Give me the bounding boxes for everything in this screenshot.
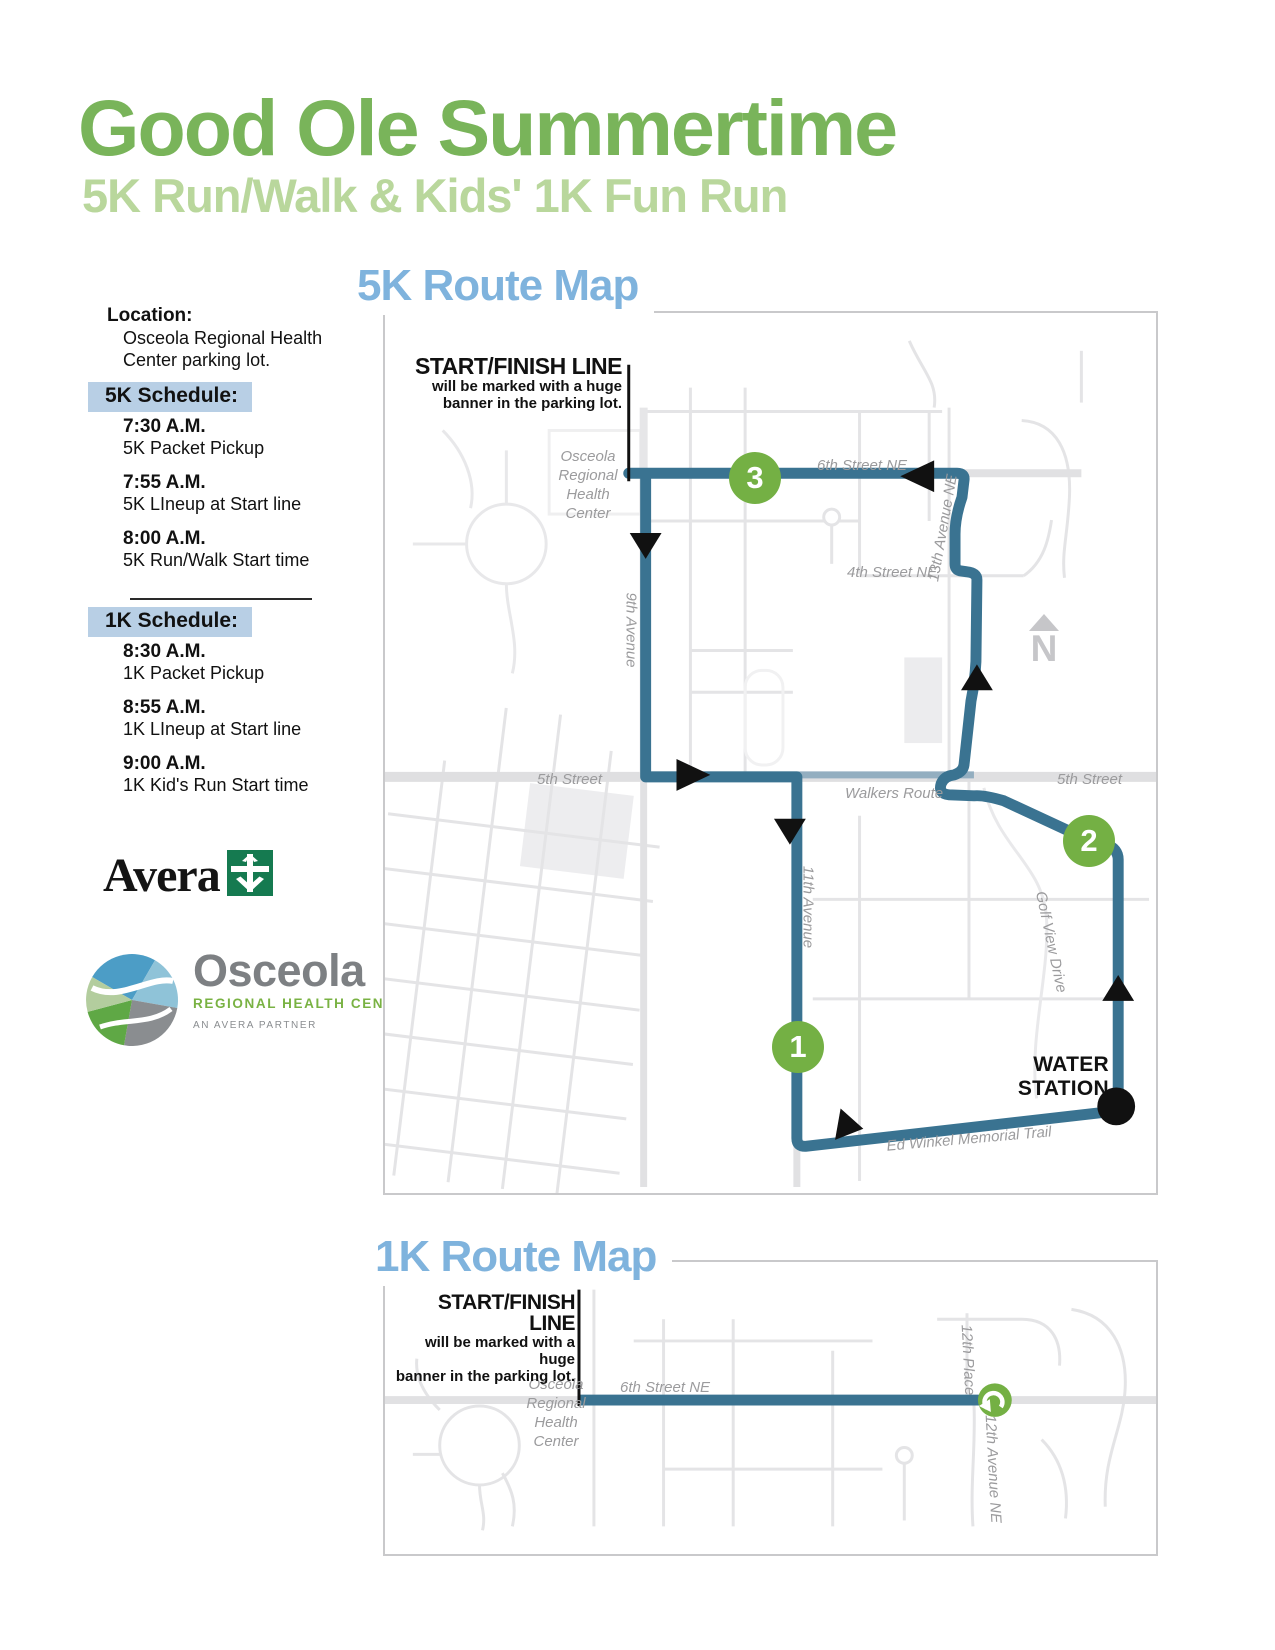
schedule-time: 7:30 A.M.: [123, 416, 309, 438]
arrow-north-east-leg: [1102, 975, 1134, 1001]
street-label-6th-1k: 6th Street NE: [620, 1379, 710, 1396]
schedule-1k-item: 8:30 A.M. 1K Packet Pickup: [123, 641, 309, 684]
walkers-route-label: Walkers Route: [845, 785, 943, 802]
hospital-label-line: Regional: [535, 466, 641, 485]
schedule-5k-item: 7:30 A.M. 5K Packet Pickup: [123, 416, 309, 459]
hospital-label-line: Center: [506, 1432, 606, 1451]
map-5k-heading: 5K Route Map: [357, 263, 654, 315]
map-1k: START/FINISH LINE will be marked with a …: [383, 1260, 1158, 1556]
start-finish-sub2: banner in the parking lot.: [385, 395, 622, 412]
start-finish-sub2: banner in the parking lot.: [387, 1368, 575, 1385]
tilted-street-grid: [385, 695, 674, 1193]
schedule-1k-item: 9:00 A.M. 1K Kid's Run Start time: [123, 753, 309, 796]
map-1k-heading: 1K Route Map: [375, 1234, 672, 1286]
osceola-logo: Osceola REGIONAL HEALTH CENTER AN AVERA …: [80, 948, 416, 1057]
location-line-2: Center parking lot.: [123, 349, 322, 371]
route-marker-2: 2: [1063, 815, 1115, 867]
avera-wordmark: Avera: [103, 852, 220, 900]
water-station-line: STATION: [889, 1077, 1109, 1101]
street-label-9th-ave: 9th Avenue: [623, 592, 640, 667]
schedule-desc: 5K Run/Walk Start time: [123, 550, 309, 571]
schedule-desc: 1K LIneup at Start line: [123, 719, 309, 740]
street-label-6th: 6th Street NE: [817, 457, 907, 474]
schedule-5k-item: 8:00 A.M. 5K Run/Walk Start time: [123, 528, 309, 571]
hospital-label-line: Health: [506, 1413, 606, 1432]
cul-de-sac: [824, 509, 840, 525]
compass-letter: N: [1031, 631, 1058, 667]
street-golf-view: [984, 788, 1047, 1099]
start-finish-sub1: will be marked with a huge: [385, 378, 622, 395]
schedule-1k-item: 8:55 A.M. 1K LIneup at Start line: [123, 697, 309, 740]
start-finish-sub1: will be marked with a huge: [387, 1334, 575, 1368]
schedule-1k-list: 8:30 A.M. 1K Packet Pickup 8:55 A.M. 1K …: [123, 641, 309, 809]
parking-lot-outline: [745, 670, 783, 765]
hospital-label-1k: Osceola Regional Health Center: [506, 1375, 606, 1451]
hospital-label-line: Osceola: [535, 447, 641, 466]
route-marker-3: 3: [729, 452, 781, 504]
hospital-label-line: Regional: [506, 1394, 606, 1413]
schedule-desc: 1K Kid's Run Start time: [123, 775, 309, 796]
schedule-desc: 5K LIneup at Start line: [123, 494, 309, 515]
hospital-label-line: Center: [535, 504, 641, 523]
schedule-5k-list: 7:30 A.M. 5K Packet Pickup 7:55 A.M. 5K …: [123, 416, 309, 584]
schedule-5k-item: 7:55 A.M. 5K LIneup at Start line: [123, 472, 309, 515]
schedule-time: 9:00 A.M.: [123, 753, 309, 775]
route-marker-1: 1: [772, 1021, 824, 1073]
start-finish-annotation-5k: START/FINISH LINE will be marked with a …: [385, 355, 622, 412]
building-block: [904, 657, 942, 743]
start-finish-annotation-1k: START/FINISH LINE will be marked with a …: [387, 1292, 575, 1385]
arrow-north-13th: [961, 664, 993, 690]
location-block: Location: Osceola Regional Health Center…: [107, 305, 322, 371]
street-label-4th: 4th Street NE: [847, 564, 937, 581]
schedule-time: 8:00 A.M.: [123, 528, 309, 550]
location-line-1: Osceola Regional Health: [123, 327, 322, 349]
street-label-5th-left: 5th Street: [537, 771, 602, 788]
start-finish-title: START/FINISH LINE: [385, 355, 622, 378]
schedule-time: 7:55 A.M.: [123, 472, 309, 494]
osceola-sphere-icon: [80, 948, 184, 1057]
schedule-desc: 1K Packet Pickup: [123, 663, 309, 684]
compass-north-icon: N: [1022, 614, 1066, 667]
event-subtitle: 5K Run/Walk & Kids' 1K Fun Run: [82, 172, 787, 219]
event-title: Good Ole Summertime: [78, 88, 896, 167]
avera-tree-icon: [227, 850, 273, 901]
street-label-5th-right: 5th Street: [1057, 771, 1122, 788]
location-label: Location:: [107, 305, 322, 327]
street-label-12th-place: 12th Place: [958, 1324, 979, 1396]
direction-arrows: [630, 460, 1134, 1144]
schedule-time: 8:55 A.M.: [123, 697, 309, 719]
schedule-divider: [130, 598, 312, 600]
flyer-page: Good Ole Summertime 5K Run/Walk & Kids' …: [0, 0, 1275, 1650]
water-station-label: WATER STATION: [889, 1053, 1109, 1101]
arrow-south-9th: [630, 533, 662, 559]
schedule-desc: 5K Packet Pickup: [123, 438, 309, 459]
schedule-1k-header: 1K Schedule:: [88, 607, 252, 637]
schedule-5k-header: 5K Schedule:: [88, 382, 252, 412]
map-5k: START/FINISH LINE will be marked with a …: [383, 311, 1158, 1195]
schedule-time: 8:30 A.M.: [123, 641, 309, 663]
arrow-east-5th: [676, 759, 710, 791]
hospital-label-line: Health: [535, 485, 641, 504]
water-station-line: WATER: [889, 1053, 1109, 1077]
turnaround-icon: [978, 1383, 1012, 1417]
start-finish-title: START/FINISH LINE: [387, 1292, 575, 1334]
hospital-label-5k: Osceola Regional Health Center: [535, 447, 641, 523]
street-label-11th-ave: 11th Avenue: [800, 866, 817, 948]
avera-logo: Avera: [103, 850, 273, 901]
